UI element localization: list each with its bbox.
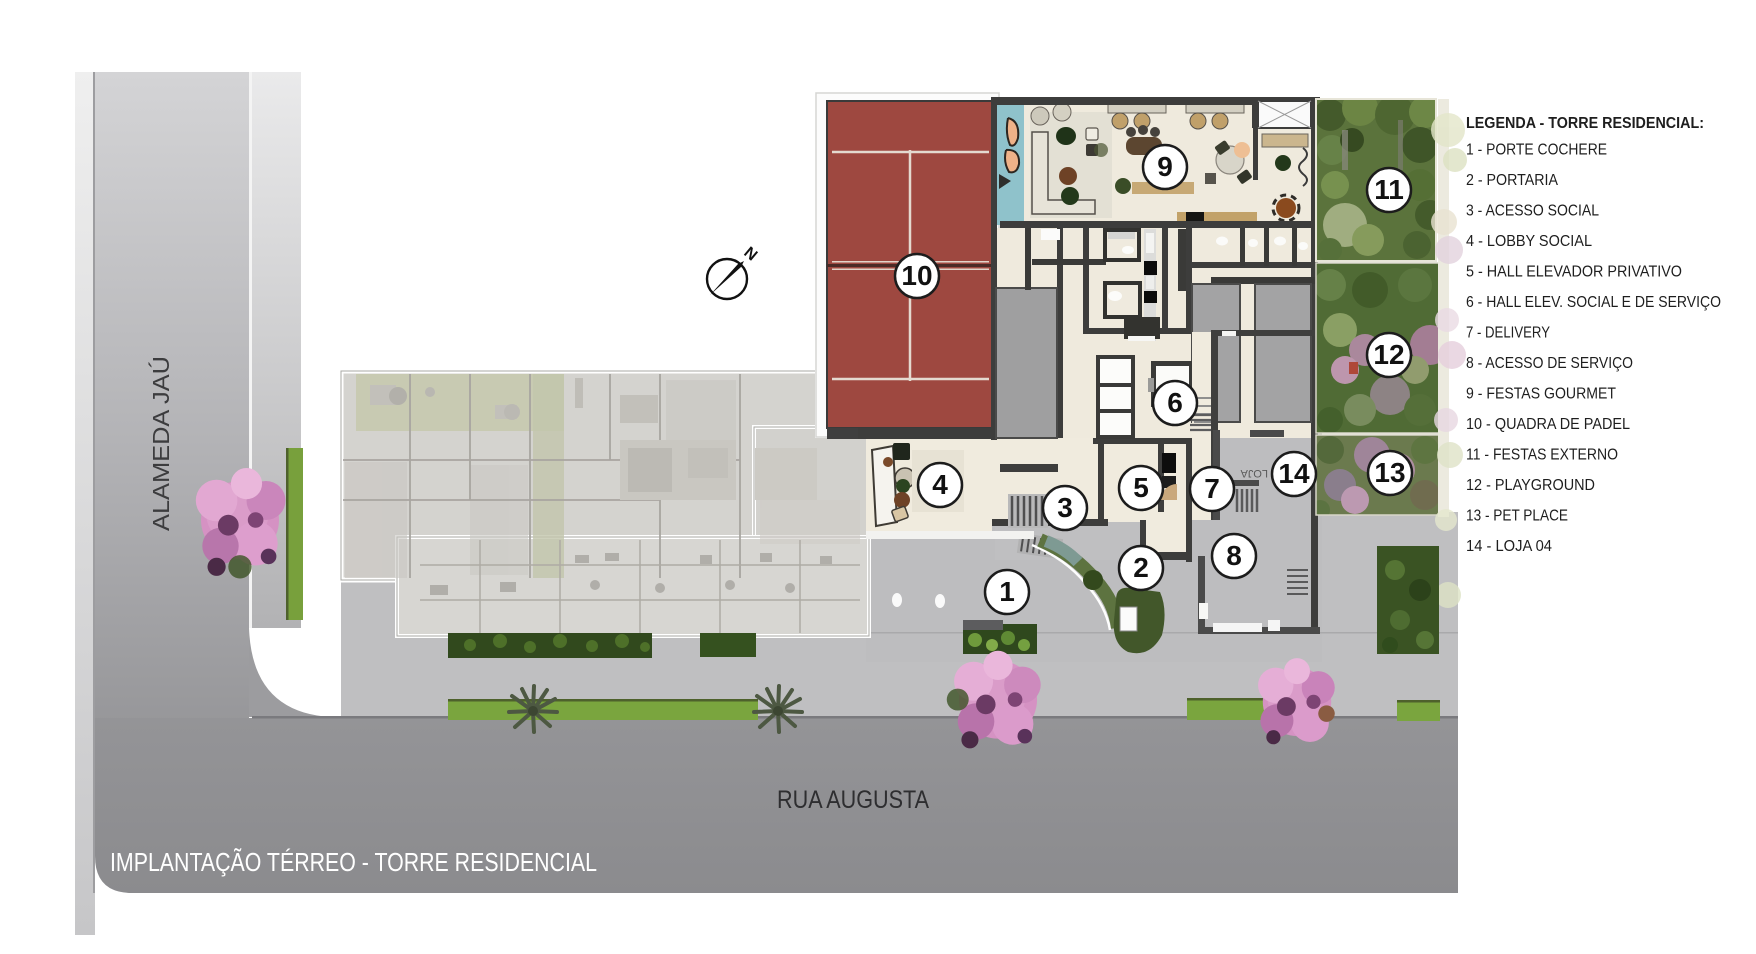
- svg-text:2: 2: [1133, 552, 1149, 583]
- svg-text:3: 3: [1057, 492, 1073, 523]
- svg-text:6 - HALL ELEV. SOCIAL E DE SER: 6 - HALL ELEV. SOCIAL E DE SERVIÇO: [1466, 294, 1721, 311]
- svg-text:LEGENDA - TORRE RESIDENCIAL:: LEGENDA - TORRE RESIDENCIAL:: [1466, 115, 1704, 132]
- svg-text:IMPLANTAÇÃO TÉRREO - TORRE RE: IMPLANTAÇÃO TÉRREO - TORRE RESIDENCIAL: [110, 847, 597, 877]
- svg-text:10 - QUADRA DE PADEL: 10 - QUADRA DE PADEL: [1466, 416, 1630, 433]
- svg-text:7: 7: [1204, 473, 1220, 504]
- svg-text:6: 6: [1167, 387, 1183, 418]
- svg-text:4 - LOBBY SOCIAL: 4 - LOBBY SOCIAL: [1466, 233, 1592, 250]
- svg-text:10: 10: [901, 260, 932, 291]
- svg-text:5: 5: [1133, 472, 1149, 503]
- svg-text:11: 11: [1374, 174, 1404, 205]
- svg-text:14: 14: [1278, 458, 1310, 489]
- svg-text:1: 1: [999, 576, 1015, 607]
- svg-text:5 - HALL ELEVADOR PRIVATIVO: 5 - HALL ELEVADOR PRIVATIVO: [1466, 264, 1682, 281]
- svg-text:13 - PET PLACE: 13 - PET PLACE: [1466, 508, 1568, 525]
- svg-text:12 - PLAYGROUND: 12 - PLAYGROUND: [1466, 477, 1595, 494]
- svg-text:1 - PORTE COCHERE: 1 - PORTE COCHERE: [1466, 142, 1607, 159]
- svg-text:13: 13: [1374, 457, 1405, 488]
- svg-text:8 - ACESSO DE SERVIÇO: 8 - ACESSO DE SERVIÇO: [1466, 355, 1633, 372]
- svg-text:LOJA: LOJA: [1240, 467, 1268, 479]
- svg-text:9 - FESTAS GOURMET: 9 - FESTAS GOURMET: [1466, 386, 1616, 403]
- svg-text:12: 12: [1373, 339, 1404, 370]
- svg-text:4: 4: [932, 469, 948, 500]
- svg-text:2 - PORTARIA: 2 - PORTARIA: [1466, 172, 1558, 189]
- svg-text:9: 9: [1157, 151, 1173, 182]
- svg-text:14 - LOJA 04: 14 - LOJA 04: [1466, 538, 1552, 555]
- svg-text:RUA AUGUSTA: RUA AUGUSTA: [777, 786, 929, 814]
- svg-text:3 - ACESSO SOCIAL: 3 - ACESSO SOCIAL: [1466, 203, 1599, 220]
- svg-text:8: 8: [1226, 540, 1242, 571]
- svg-text:ALAMEDA JAÚ: ALAMEDA JAÚ: [148, 356, 174, 531]
- svg-text:11 - FESTAS EXTERNO: 11 - FESTAS EXTERNO: [1466, 447, 1618, 464]
- svg-text:7 - DELIVERY: 7 - DELIVERY: [1466, 325, 1550, 342]
